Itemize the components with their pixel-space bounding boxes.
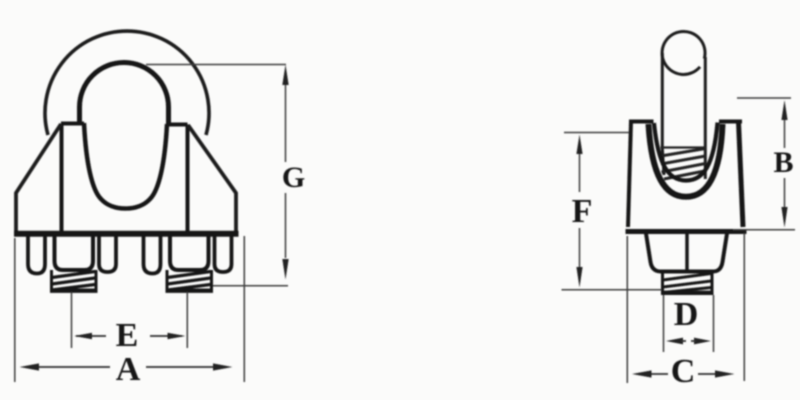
svg-text:B: B — [773, 146, 793, 179]
svg-text:A: A — [116, 351, 141, 388]
svg-text:F: F — [572, 193, 593, 230]
svg-text:G: G — [282, 161, 305, 194]
svg-text:C: C — [671, 353, 696, 390]
svg-text:D: D — [674, 296, 699, 333]
svg-text:E: E — [116, 317, 139, 354]
